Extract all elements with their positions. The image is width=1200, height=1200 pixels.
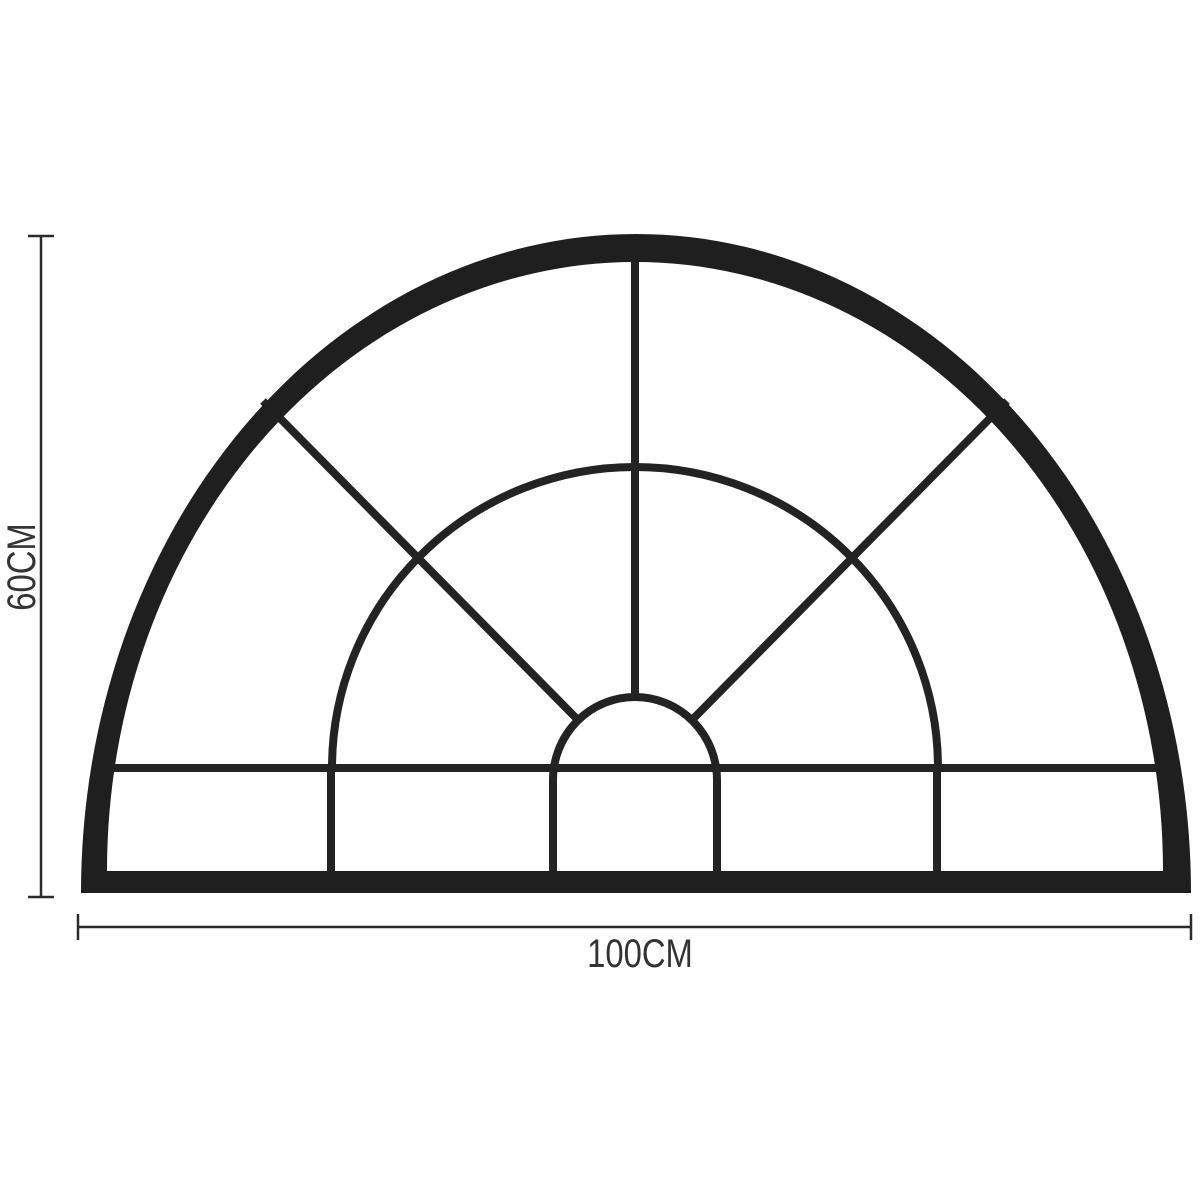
center-arch-mullion [553,697,717,882]
left-diagonal-mullion [263,401,578,720]
height-dimension-label: 60CM [2,501,42,632]
width-dimension-label: 100CM [558,934,722,974]
dimension-diagram: 60CM 100CM [0,0,1200,1200]
window-frame-drawing [0,0,1200,1200]
mullion-group [98,256,1172,882]
right-diagonal-mullion [692,401,1007,720]
